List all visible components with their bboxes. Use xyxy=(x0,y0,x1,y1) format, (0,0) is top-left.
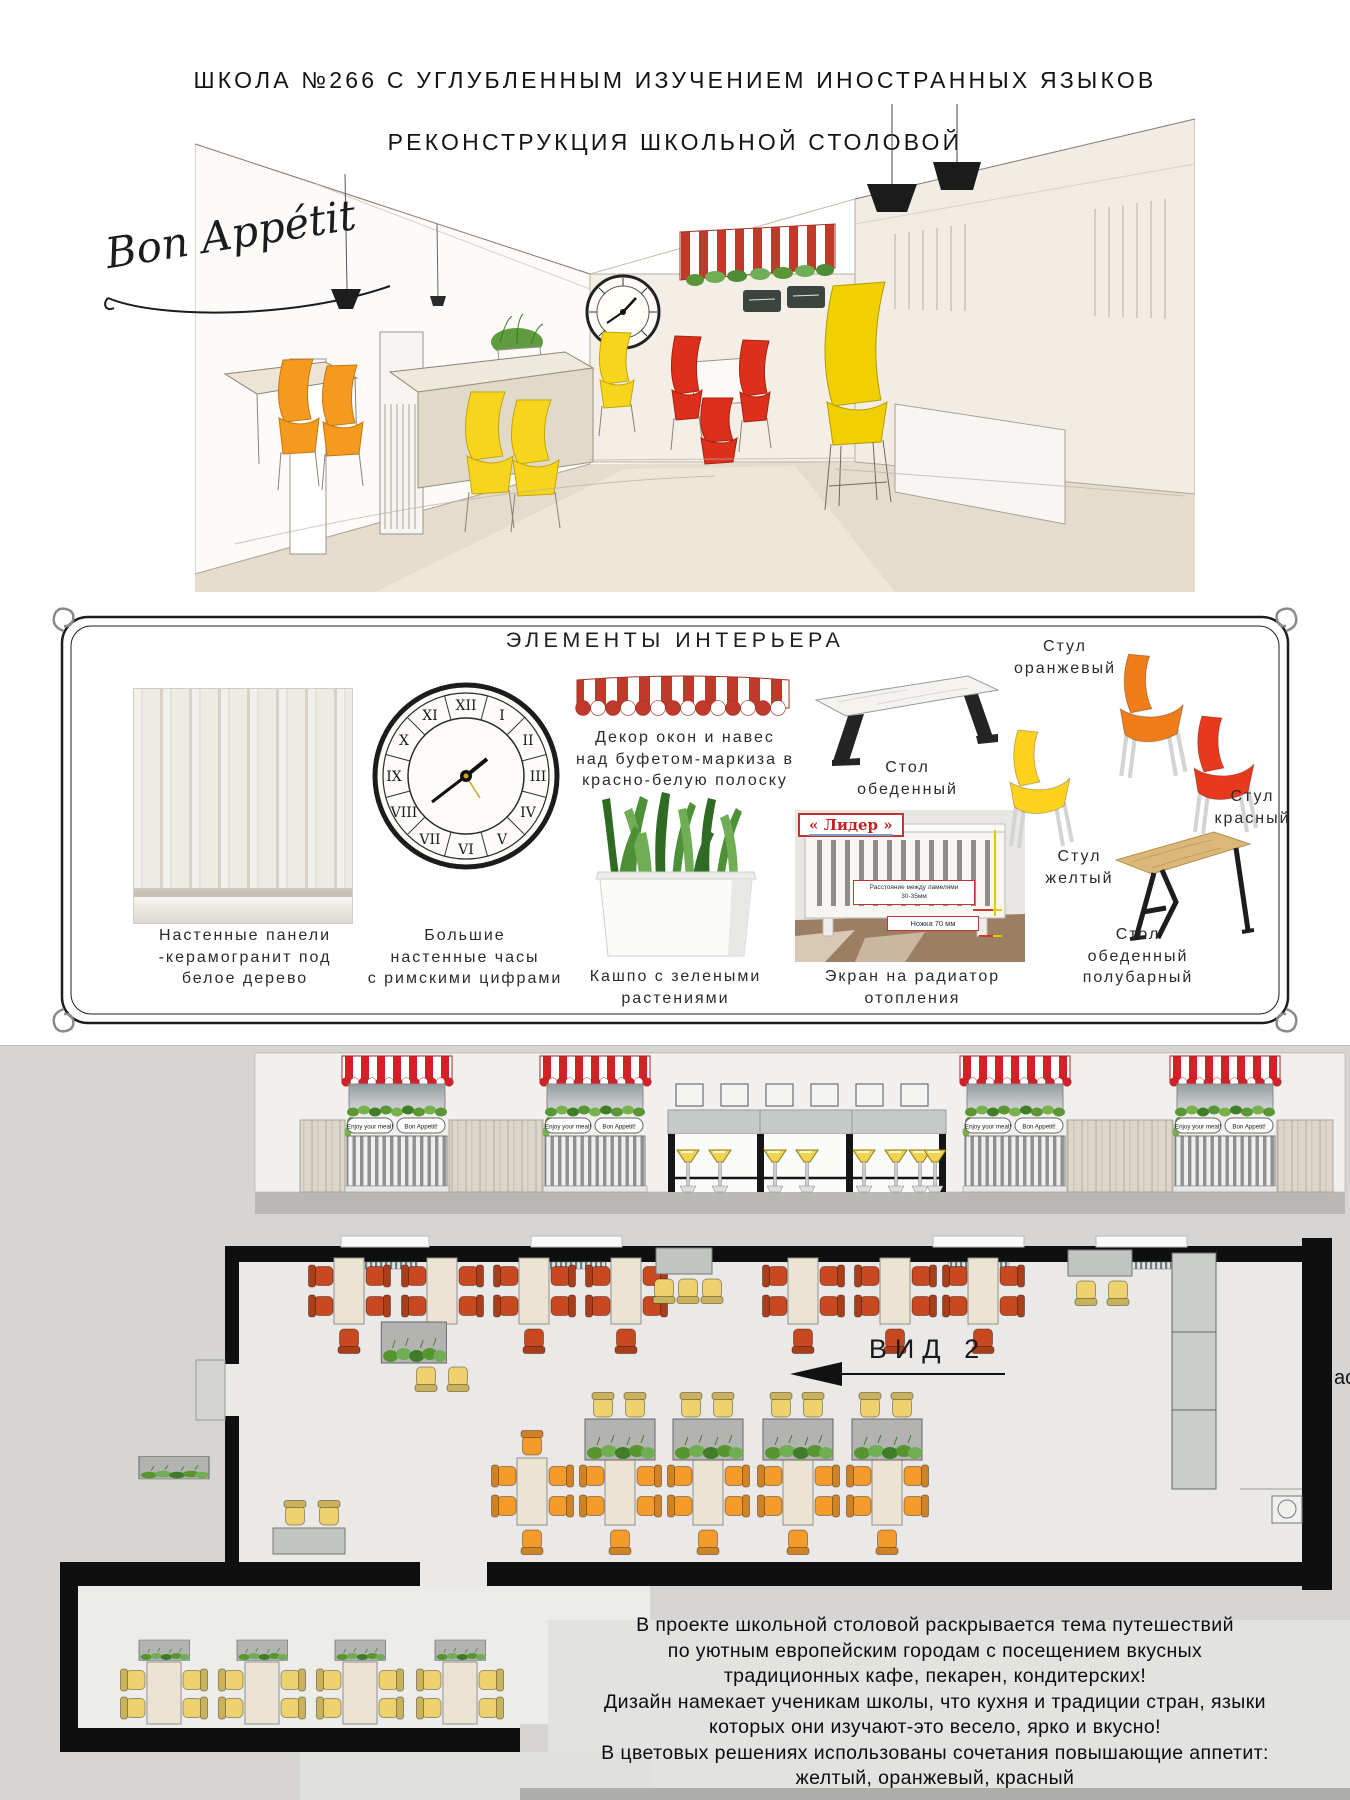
awning-window-unit xyxy=(540,1056,652,1192)
awning-caption: Декор окон и навес над буфетом-маркиза в… xyxy=(560,727,810,792)
title-line-1: ШКОЛА №266 С УГЛУБЛЕННЫМ ИЗУЧЕНИЕМ ИНОСТ… xyxy=(0,65,1350,96)
wall-panels-image xyxy=(133,688,353,924)
radiator-note-leg: Ножка 70 мм xyxy=(887,916,979,931)
svg-text:VIII: VIII xyxy=(390,805,418,821)
svg-text:VI: VI xyxy=(457,842,474,858)
plant-leaves xyxy=(602,792,742,881)
edge-partial-text: ас xyxy=(1334,1367,1350,1389)
svg-text:X: X xyxy=(399,733,409,749)
svg-text:III: III xyxy=(530,769,547,785)
radiator-brand-label: « Лидер » xyxy=(798,813,904,837)
design-board-page: ШКОЛА №266 С УГЛУБЛЕННЫМ ИЗУЧЕНИЕМ ИНОСТ… xyxy=(0,0,1350,1800)
plan-window-sills xyxy=(341,1236,1187,1247)
interior-sketch xyxy=(195,104,1195,592)
project-description: В проекте школьной столовой раскрывается… xyxy=(520,1613,1350,1792)
plan-planter xyxy=(381,1322,446,1363)
radiator-screen-image: « Лидер » Расстояние между ламелями 30-3… xyxy=(795,810,1025,962)
radiator-caption: Экран на радиатор отопления xyxy=(795,966,1030,1009)
elevation-drawing: Enjoy your meal! Bon Appetit! xyxy=(0,1048,1350,1223)
svg-text:I: I xyxy=(499,708,505,724)
radiator-note-spacing: Расстояние между ламелями 30-35мм xyxy=(853,880,975,905)
svg-text:IV: IV xyxy=(520,805,537,821)
elements-board-heading: ЭЛЕМЕНТЫ ИНТЕРЬЕРА xyxy=(375,628,975,653)
svg-text:VII: VII xyxy=(418,832,440,848)
svg-text:V: V xyxy=(496,832,508,848)
planter-caption: Кашпо с зелеными растениями xyxy=(568,966,783,1009)
view-label: ВИД 2 xyxy=(869,1334,987,1364)
svg-text:II: II xyxy=(522,733,533,749)
chair-orange-caption: Стул оранжевый xyxy=(995,636,1135,679)
bon-appetit-underline xyxy=(100,280,400,320)
wall-panel-baseboard xyxy=(134,895,352,923)
dining-table-image xyxy=(808,670,1006,770)
wall-clock-image: XII I II III IV V VI VII VIII IX X XI xyxy=(368,676,564,906)
awning-window-unit xyxy=(1170,1056,1282,1192)
svg-text:XII: XII xyxy=(455,698,476,714)
wall-clock-caption: Большие настенные часы с римскими цифрам… xyxy=(340,925,590,990)
svg-text:IX: IX xyxy=(386,769,402,785)
bar-table-caption: Стол обеденный полубарный xyxy=(1063,924,1213,989)
yellow-chair-icon xyxy=(1010,730,1072,848)
planter-image xyxy=(582,786,770,962)
awning-window-unit xyxy=(960,1056,1072,1192)
dining-table-caption: Стол обеденный xyxy=(820,757,995,800)
awning-window-unit xyxy=(342,1056,454,1192)
svg-text:XI: XI xyxy=(422,708,438,724)
chair-red-caption: Стул красный xyxy=(1190,786,1315,829)
awning-image xyxy=(573,672,793,724)
